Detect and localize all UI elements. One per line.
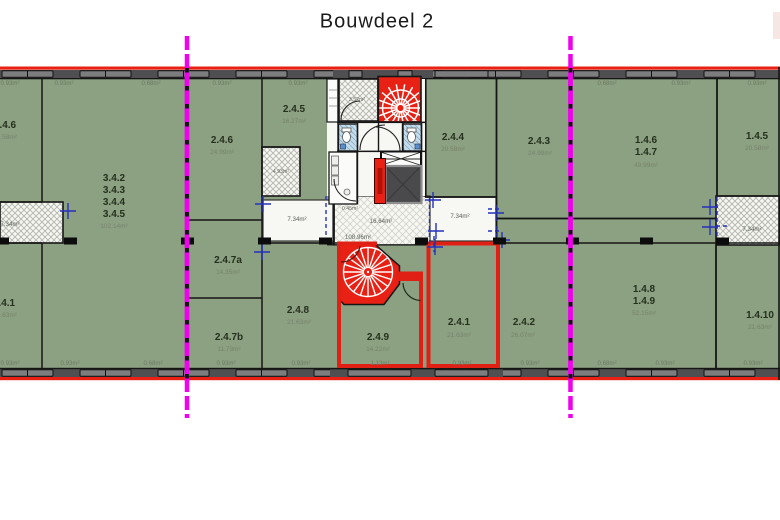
svg-text:0.93m²: 0.93m² [292, 360, 311, 367]
svg-text:49.99m²: 49.99m² [634, 162, 659, 169]
svg-text:3.4.6: 3.4.6 [0, 120, 17, 131]
svg-text:0.93m²: 0.93m² [453, 360, 472, 367]
svg-text:7.34m²: 7.34m² [450, 213, 469, 220]
svg-text:0.93m²: 0.93m² [1, 80, 20, 87]
svg-text:16.27m²: 16.27m² [282, 118, 307, 125]
svg-text:3.4.3: 3.4.3 [103, 185, 126, 196]
svg-text:1.13m²: 1.13m² [371, 360, 390, 367]
svg-text:1.4.8: 1.4.8 [633, 284, 656, 295]
svg-text:20.58m²: 20.58m² [441, 146, 466, 153]
svg-text:0.93m²: 0.93m² [521, 360, 540, 367]
svg-text:14.22m²: 14.22m² [366, 346, 391, 353]
svg-text:11.73m²: 11.73m² [217, 346, 241, 353]
svg-text:7.34m²: 7.34m² [287, 216, 306, 223]
svg-text:7.34m²: 7.34m² [0, 221, 19, 228]
svg-text:0.68m²: 0.68m² [144, 360, 163, 367]
svg-text:52.15m²: 52.15m² [632, 310, 657, 317]
svg-text:0.45m²: 0.45m² [342, 206, 358, 212]
svg-text:2.4.7b: 2.4.7b [215, 332, 243, 343]
svg-text:21.63m²: 21.63m² [748, 324, 773, 331]
svg-text:0.93m²: 0.93m² [217, 360, 236, 367]
svg-text:2.4.5: 2.4.5 [283, 104, 306, 115]
svg-text:3.4.1: 3.4.1 [0, 298, 16, 309]
svg-text:24.99m²: 24.99m² [528, 150, 553, 157]
svg-text:0.93m²: 0.93m² [55, 80, 74, 87]
svg-text:0.93m²: 0.93m² [656, 360, 675, 367]
svg-text:2.4.7a: 2.4.7a [214, 255, 242, 266]
svg-text:0.93m²: 0.93m² [744, 360, 763, 367]
svg-text:0.93m²: 0.93m² [672, 80, 691, 87]
svg-text:0.93m²: 0.93m² [1, 360, 20, 367]
svg-text:3.4.5: 3.4.5 [103, 209, 126, 220]
svg-text:3.52m²: 3.52m² [349, 97, 365, 103]
svg-text:1.4.10: 1.4.10 [746, 310, 774, 321]
svg-text:21.63m²: 21.63m² [447, 332, 472, 339]
svg-text:0.93m²: 0.93m² [213, 80, 232, 87]
svg-text:4.93m²: 4.93m² [273, 169, 289, 175]
svg-text:0.68m²: 0.68m² [598, 80, 617, 87]
svg-text:2.4.1: 2.4.1 [448, 317, 471, 328]
svg-text:0.68m²: 0.68m² [142, 80, 161, 87]
svg-text:16.64m²: 16.64m² [370, 218, 393, 225]
svg-text:21.63m²: 21.63m² [287, 319, 312, 326]
svg-text:21.63m²: 21.63m² [0, 312, 18, 319]
svg-text:14.35m²: 14.35m² [216, 269, 241, 276]
svg-text:1.4.9: 1.4.9 [633, 296, 656, 307]
svg-text:24.99m²: 24.99m² [210, 149, 235, 156]
svg-text:102.14m²: 102.14m² [100, 223, 128, 230]
svg-text:1.4.6: 1.4.6 [635, 135, 658, 146]
svg-text:0.93m²: 0.93m² [289, 80, 308, 87]
svg-text:0.68m²: 0.68m² [598, 360, 617, 367]
svg-text:0.93m²: 0.93m² [748, 80, 767, 87]
svg-text:108.96m²: 108.96m² [345, 234, 371, 241]
svg-text:2.4.3: 2.4.3 [528, 136, 551, 147]
svg-text:1.4.5: 1.4.5 [746, 131, 769, 142]
svg-text:1.4.7: 1.4.7 [635, 147, 658, 158]
svg-text:2.4.2: 2.4.2 [513, 317, 536, 328]
svg-text:3.4.4: 3.4.4 [103, 197, 126, 208]
svg-text:2.4.9: 2.4.9 [367, 332, 390, 343]
svg-text:2.4.6: 2.4.6 [211, 135, 234, 146]
svg-text:2.4.4: 2.4.4 [442, 132, 465, 143]
svg-text:Bouwdeel 2: Bouwdeel 2 [320, 11, 435, 33]
svg-text:2.4.8: 2.4.8 [287, 305, 310, 316]
svg-text:3.4.2: 3.4.2 [103, 173, 126, 184]
svg-text:20.58m²: 20.58m² [745, 145, 770, 152]
svg-text:0.93m²: 0.93m² [61, 360, 80, 367]
svg-text:26.07m²: 26.07m² [511, 332, 536, 339]
svg-text:20.58m²: 20.58m² [0, 134, 18, 141]
svg-text:7.34m²: 7.34m² [742, 226, 761, 233]
